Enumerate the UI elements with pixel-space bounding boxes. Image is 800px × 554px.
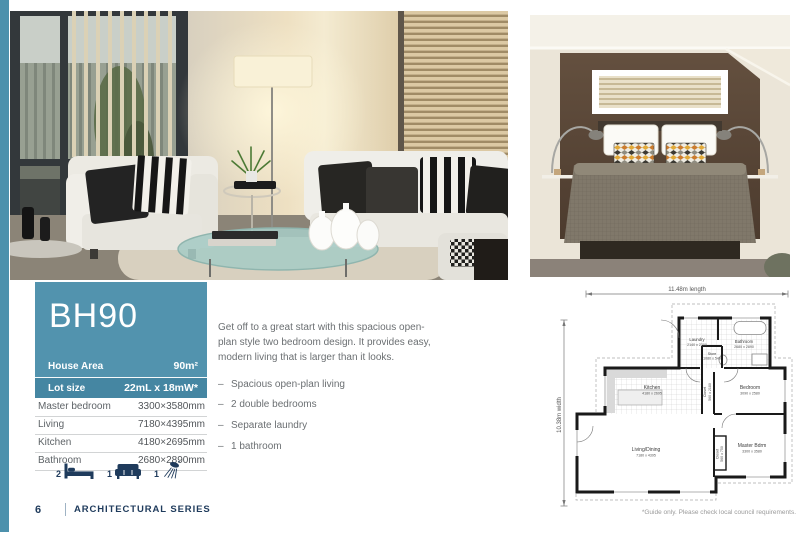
room-dims: 1080 x 540 (703, 357, 721, 361)
floorplan: 11.48m length 10.38m width (556, 284, 796, 524)
house-area-row: House Area 90m² (35, 357, 207, 378)
spec-value: 7180×4395mm (138, 419, 205, 431)
bedrooms-count: 2 (56, 463, 94, 479)
room-dims: 3300 x 3580 (742, 450, 762, 454)
bullet-item: Spacious open-plan living (218, 377, 432, 392)
room-dims: 4180 x 2695 (642, 392, 662, 396)
feature-bullet-list: Spacious open-plan living 2 double bedro… (218, 377, 432, 454)
page-number: 6 (35, 504, 65, 516)
brochure-page: BH90 House Area 90m² Lot size 22mL x 18m… (0, 0, 800, 554)
room-dims: 2680 x 2890 (734, 345, 754, 349)
living-room-photo (10, 11, 508, 280)
room-dims: 560 x 750 (720, 446, 724, 462)
shower-icon (162, 461, 180, 479)
living-count: 1 (107, 463, 141, 479)
bedroom-photo (530, 15, 790, 277)
room-label: Store (708, 352, 717, 356)
bedroom-scene (530, 15, 790, 277)
feature-icons: 2 1 1 (56, 461, 206, 479)
room-label: Living/Dining (632, 447, 661, 453)
spec-label: Kitchen (38, 437, 71, 449)
lot-size-value: 22mL x 18mW* (124, 382, 198, 394)
width-dimension: 10.38m width (557, 320, 568, 506)
length-dimension: 11.48m length (586, 287, 788, 298)
timber-slats (72, 11, 172, 157)
model-name: BH90 (35, 282, 207, 357)
room-label: Kitchen (644, 385, 661, 391)
bullet-item: Separate laundry (218, 418, 432, 433)
page-footer: 6 ARCHITECTURAL SERIES (35, 503, 211, 516)
ceiling (530, 15, 790, 49)
length-label: 11.48m length (668, 287, 706, 293)
room-dims: 3090 x 2580 (740, 392, 760, 396)
bullet-item: 1 bathroom (218, 439, 432, 454)
room-label: Laundry (689, 337, 705, 342)
room-label: Bedroom (740, 385, 760, 391)
room-label: Closet (703, 387, 707, 397)
spec-value: 3300×3580mm (138, 401, 205, 413)
series-title: ARCHITECTURAL SERIES (65, 503, 211, 516)
room-dims: 560 x 2180 (708, 383, 712, 401)
room-label: Bathroom (735, 339, 754, 344)
room-label: Master Bdrm (738, 443, 767, 449)
house-area-value: 90m² (173, 360, 198, 372)
description-block: Get off to a great start with this spaci… (218, 320, 432, 459)
room-dims: 2140 x 2200 (687, 343, 707, 347)
spec-label: Living (38, 419, 64, 431)
floorplan-drawing: 11.48m length 10.38m width (556, 284, 796, 524)
table-row: Living 7180×4395mm (35, 417, 207, 435)
guide-note: *Guide only. Please check local council … (556, 509, 796, 516)
left-accent-strip (0, 0, 9, 532)
striped-cushion (132, 155, 192, 215)
description-paragraph: Get off to a great start with this spaci… (218, 320, 432, 366)
lot-size-row: Lot size 22mL x 18mW* (35, 378, 207, 398)
bed-base (580, 241, 740, 261)
dark-side-table (474, 239, 508, 280)
bed-icon (64, 463, 94, 479)
sofa-count: 1 (107, 469, 112, 479)
lot-size-label: Lot size (48, 383, 85, 394)
bathroom-count: 1 (154, 461, 180, 479)
model-panel: BH90 House Area 90m² Lot size 22mL x 18m… (35, 282, 207, 398)
shower-count: 1 (154, 469, 159, 479)
width-label: 10.38m width (557, 397, 563, 433)
table-row: Master bedroom 3300×3580mm (35, 399, 207, 417)
spec-value: 4180×2695mm (138, 437, 205, 449)
window-blinds (592, 70, 728, 114)
duvet (564, 165, 756, 243)
bullet-item: 2 double bedrooms (218, 397, 432, 412)
spec-label: Master bedroom (38, 401, 111, 413)
sofa-icon (115, 463, 141, 479)
carpet (530, 259, 790, 277)
table-row: Kitchen 4180×2695mm (35, 435, 207, 453)
house-area-label: House Area (48, 361, 103, 372)
room-label: Closet (716, 449, 720, 459)
living-room-scene (10, 11, 508, 280)
room-dims: 7180 x 4395 (636, 454, 656, 458)
books (212, 231, 278, 239)
bed-count: 2 (56, 469, 61, 479)
